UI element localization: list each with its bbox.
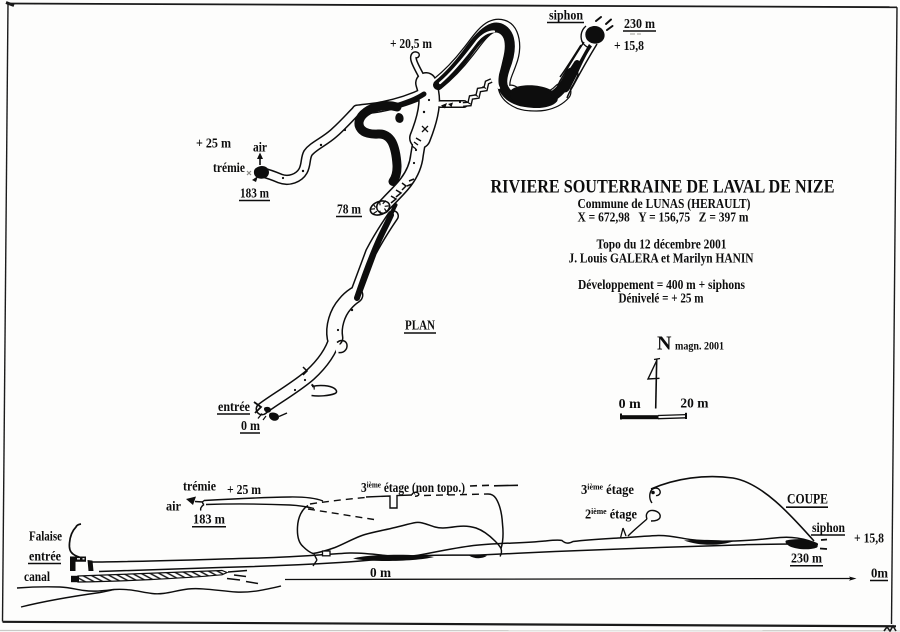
svg-text:entrée: entrée [218, 399, 250, 414]
svg-text:J. Louis GALERA et Marilyn HAN: J. Louis GALERA et Marilyn HANIN [569, 251, 754, 266]
svg-text:+ 20,5 m: + 20,5 m [390, 36, 433, 51]
svg-text:183 m: 183 m [240, 186, 270, 201]
svg-text:0 m: 0 m [370, 565, 392, 580]
svg-text:+ 25 m: + 25 m [196, 136, 232, 151]
svg-text:X = 672,98 Y = 156,75 Z =: X = 672,98 Y = 156,75 Z = 397 m [578, 210, 750, 225]
svg-text:canal: canal [24, 569, 50, 584]
svg-text:trémie: trémie [183, 479, 216, 494]
svg-text:0 m: 0 m [619, 396, 642, 411]
svg-text:air: air [166, 499, 181, 514]
svg-text:N: N [657, 333, 672, 355]
svg-text:magn. 2001: magn. 2001 [675, 339, 724, 353]
svg-text:RIVIERE SOUTERRAINE DE LAVAL D: RIVIERE SOUTERRAINE DE LAVAL DE NIZE [491, 178, 835, 198]
svg-text:Falaise: Falaise [29, 529, 62, 544]
svg-text:230 m: 230 m [624, 17, 655, 32]
svg-text:Topo du 12 décembre 2001: Topo du 12 décembre 2001 [597, 237, 727, 252]
svg-text:0m: 0m [871, 566, 889, 581]
svg-text:PLAN: PLAN [405, 319, 435, 334]
svg-text:air: air [253, 140, 267, 155]
svg-text:+ 15,8: + 15,8 [614, 39, 644, 54]
svg-text:78 m: 78 m [337, 202, 362, 217]
svg-text:COUPE: COUPE [787, 492, 828, 508]
svg-text:Dénivelé = + 25 m: Dénivelé = + 25 m [619, 291, 705, 306]
svg-text:siphon: siphon [812, 520, 845, 535]
svg-text:trémie: trémie [213, 160, 245, 175]
svg-text:20 m: 20 m [680, 396, 709, 411]
svg-text:183 m: 183 m [193, 512, 226, 527]
svg-text:0 m: 0 m [241, 418, 261, 433]
svg-text:entrée: entrée [29, 549, 61, 564]
svg-text:+ 25 m: + 25 m [227, 482, 262, 497]
svg-text:+ 15,8: + 15,8 [854, 531, 884, 546]
svg-text:siphon: siphon [549, 9, 583, 24]
svg-text:230 m: 230 m [791, 551, 823, 566]
